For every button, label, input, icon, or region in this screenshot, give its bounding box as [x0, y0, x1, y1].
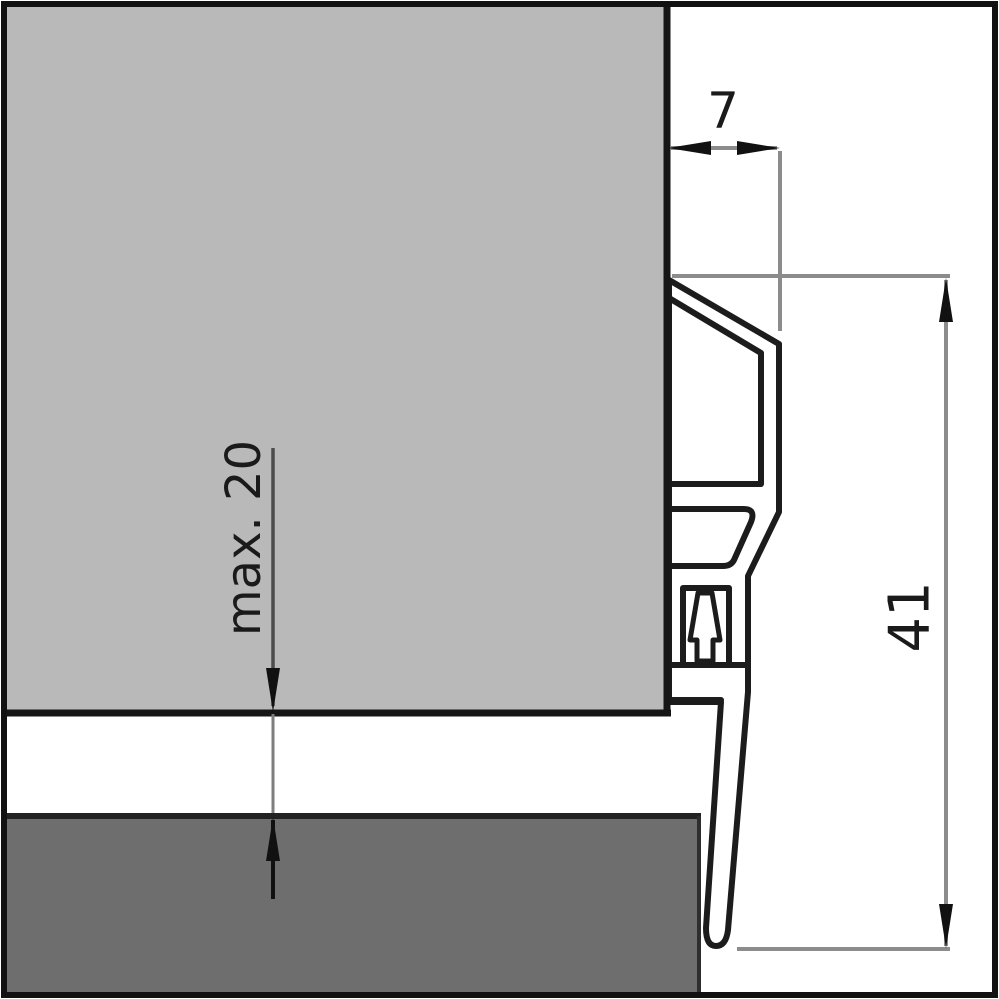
floor-slab [6, 816, 701, 994]
seal-clip-barb [690, 593, 720, 661]
dim-gap-label: max. 20 [220, 440, 268, 636]
arrowhead-down-icon [939, 904, 953, 948]
arrowhead-left-icon [668, 141, 711, 155]
arrowhead-up-icon [939, 278, 953, 322]
arrowhead-right-icon [737, 141, 780, 155]
dim-width-label: 7 [707, 86, 739, 136]
technical-drawing-canvas: 7 41 max. 20 [0, 0, 999, 999]
seal-cross-section-drawing [0, 0, 999, 999]
dim-height-label: 41 [883, 581, 939, 652]
door-panel [6, 6, 668, 714]
